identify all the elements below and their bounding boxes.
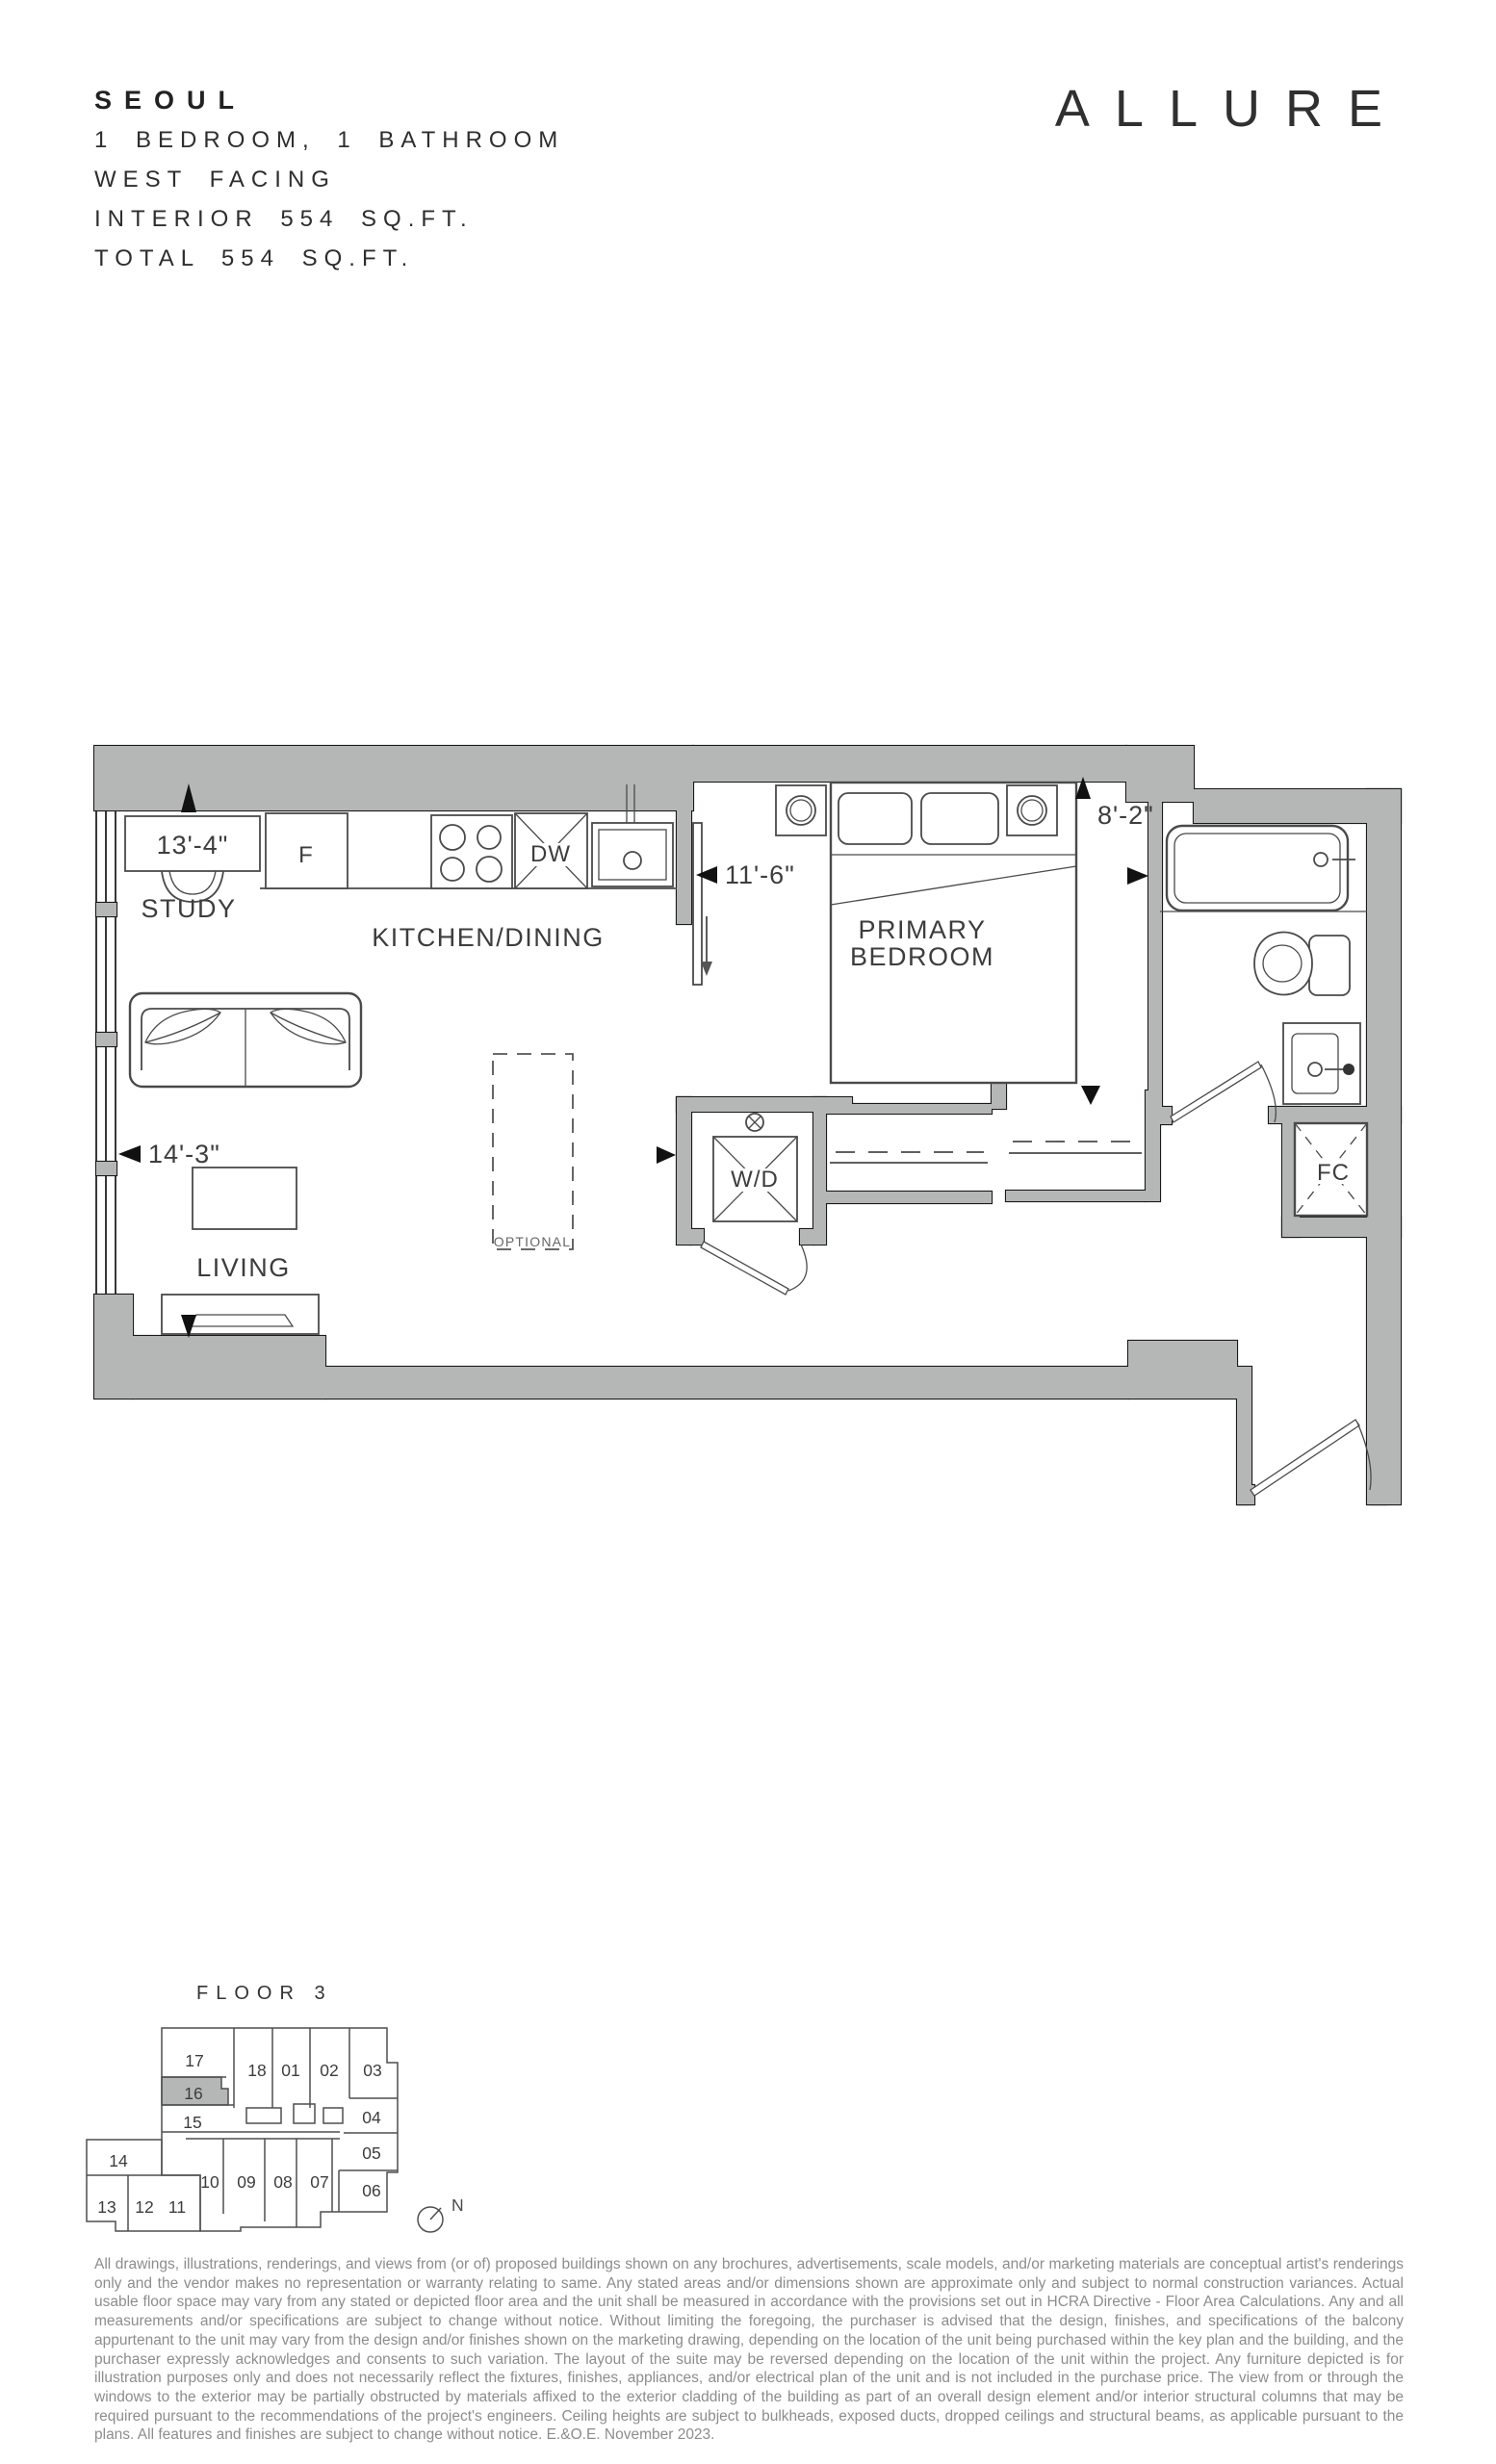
keyplan-unit: 02 <box>320 2061 338 2080</box>
study-label: STUDY <box>141 894 236 923</box>
floor-plan: 13'-4" STUDY F DW <box>87 741 1415 1521</box>
entry-door <box>1251 1420 1371 1496</box>
marker-arrow-right-wd <box>657 1146 676 1164</box>
living-label: LIVING <box>196 1253 291 1282</box>
keyplan-unit: 12 <box>135 2197 153 2217</box>
fridge-label: F <box>298 842 314 868</box>
primary-bedroom-label-1: PRIMARY <box>858 915 986 944</box>
washer-dryer-label: W/D <box>731 1167 779 1193</box>
svg-text:11'-6": 11'-6" <box>725 860 795 889</box>
window-wall <box>96 810 116 1295</box>
floorplan-page: SEOUL 1 BEDROOM, 1 BATHROOM WEST FACING … <box>0 0 1496 2464</box>
fan-coil-closet: FC <box>1295 1123 1367 1216</box>
dishwasher: DW <box>515 813 587 888</box>
bathtub <box>1160 826 1367 911</box>
kitchen-width-dimension: 11'-6" <box>696 860 795 889</box>
bedroom-sliding-door <box>693 823 712 985</box>
coffee-table <box>193 1168 297 1229</box>
unit-spec-total: TOTAL 554 SQ.FT. <box>94 239 564 278</box>
dishwasher-label: DW <box>530 841 571 867</box>
unit-spec-facing: WEST FACING <box>94 160 564 199</box>
keyplan-title: FLOOR 3 <box>196 1983 333 2005</box>
unit-name: SEOUL <box>94 81 564 120</box>
keyplan-outline <box>87 2028 398 2231</box>
keyplan-unit: 08 <box>273 2172 292 2192</box>
tv-console <box>162 1295 319 1334</box>
north-compass-icon: N <box>418 2195 464 2232</box>
toilet <box>1254 932 1350 995</box>
vanity-sink <box>1283 1023 1360 1104</box>
bedroom-closet <box>1009 1086 1142 1153</box>
keyplan-unit: 15 <box>183 2113 201 2132</box>
north-label: N <box>451 2195 464 2215</box>
keyplan-unit: 07 <box>310 2172 328 2192</box>
keyplan-unit: 05 <box>362 2143 380 2163</box>
bathroom-area <box>1160 826 1367 1122</box>
marker-arrow-down-closet <box>1081 1086 1100 1105</box>
marker-arrow-right-bedroom <box>1127 867 1148 885</box>
living-width-dimension: 14'-3" <box>148 1140 220 1168</box>
study-width-dimension: 13'-4" <box>157 831 229 860</box>
unit-header: SEOUL 1 BEDROOM, 1 BATHROOM WEST FACING … <box>94 81 564 278</box>
keyplan-unit: 01 <box>281 2061 299 2080</box>
unit-spec-bed-bath: 1 BEDROOM, 1 BATHROOM <box>94 120 564 160</box>
hall-closet <box>830 1152 988 1163</box>
keyplan-unit: 14 <box>109 2151 128 2170</box>
keyplan-unit: 13 <box>97 2197 116 2217</box>
living-area: LIVING 14'-3" <box>118 993 361 1338</box>
nightstand-right <box>1007 785 1057 835</box>
bedroom-width-dimension: 8'-2" <box>1097 801 1154 830</box>
optional-label: OPTIONAL <box>494 1234 571 1249</box>
wd-door-swing <box>788 1245 807 1291</box>
wd-door <box>701 1242 788 1295</box>
keyplan-unit: 10 <box>200 2172 219 2192</box>
keyplan-unit: 09 <box>237 2172 255 2192</box>
kitchen-dining-label: KITCHEN/DINING <box>372 923 605 952</box>
keyplan-unit-highlighted: 16 <box>184 2084 202 2103</box>
sofa <box>130 993 361 1087</box>
optional-island: OPTIONAL <box>493 1054 573 1249</box>
keyplan-unit: 17 <box>185 2051 203 2070</box>
nightstand-left <box>776 785 826 835</box>
brand-logo: ALLURE <box>1055 79 1407 139</box>
keyplan-unit: 04 <box>362 2108 381 2127</box>
primary-bedroom-label-2: BEDROOM <box>850 942 994 971</box>
unit-spec-interior: INTERIOR 554 SQ.FT. <box>94 199 564 239</box>
keyplan-unit: 03 <box>363 2061 381 2080</box>
keyplan-unit: 18 <box>247 2061 266 2080</box>
legal-disclaimer: All drawings, illustrations, renderings,… <box>94 2255 1404 2445</box>
keyplan-unit: 06 <box>362 2181 380 2200</box>
bathroom-door <box>1171 1062 1261 1122</box>
keyplan-unit: 11 <box>168 2197 186 2217</box>
primary-bedroom-area: PRIMARY BEDROOM 8'-2" <box>776 777 1154 1083</box>
keyplan: 17 18 01 02 03 16 15 04 05 14 10 09 08 0… <box>82 2016 505 2247</box>
study-chair-inner <box>169 871 216 894</box>
fan-coil-label: FC <box>1317 1160 1350 1186</box>
dimension-arrow-left-living <box>118 1145 141 1163</box>
